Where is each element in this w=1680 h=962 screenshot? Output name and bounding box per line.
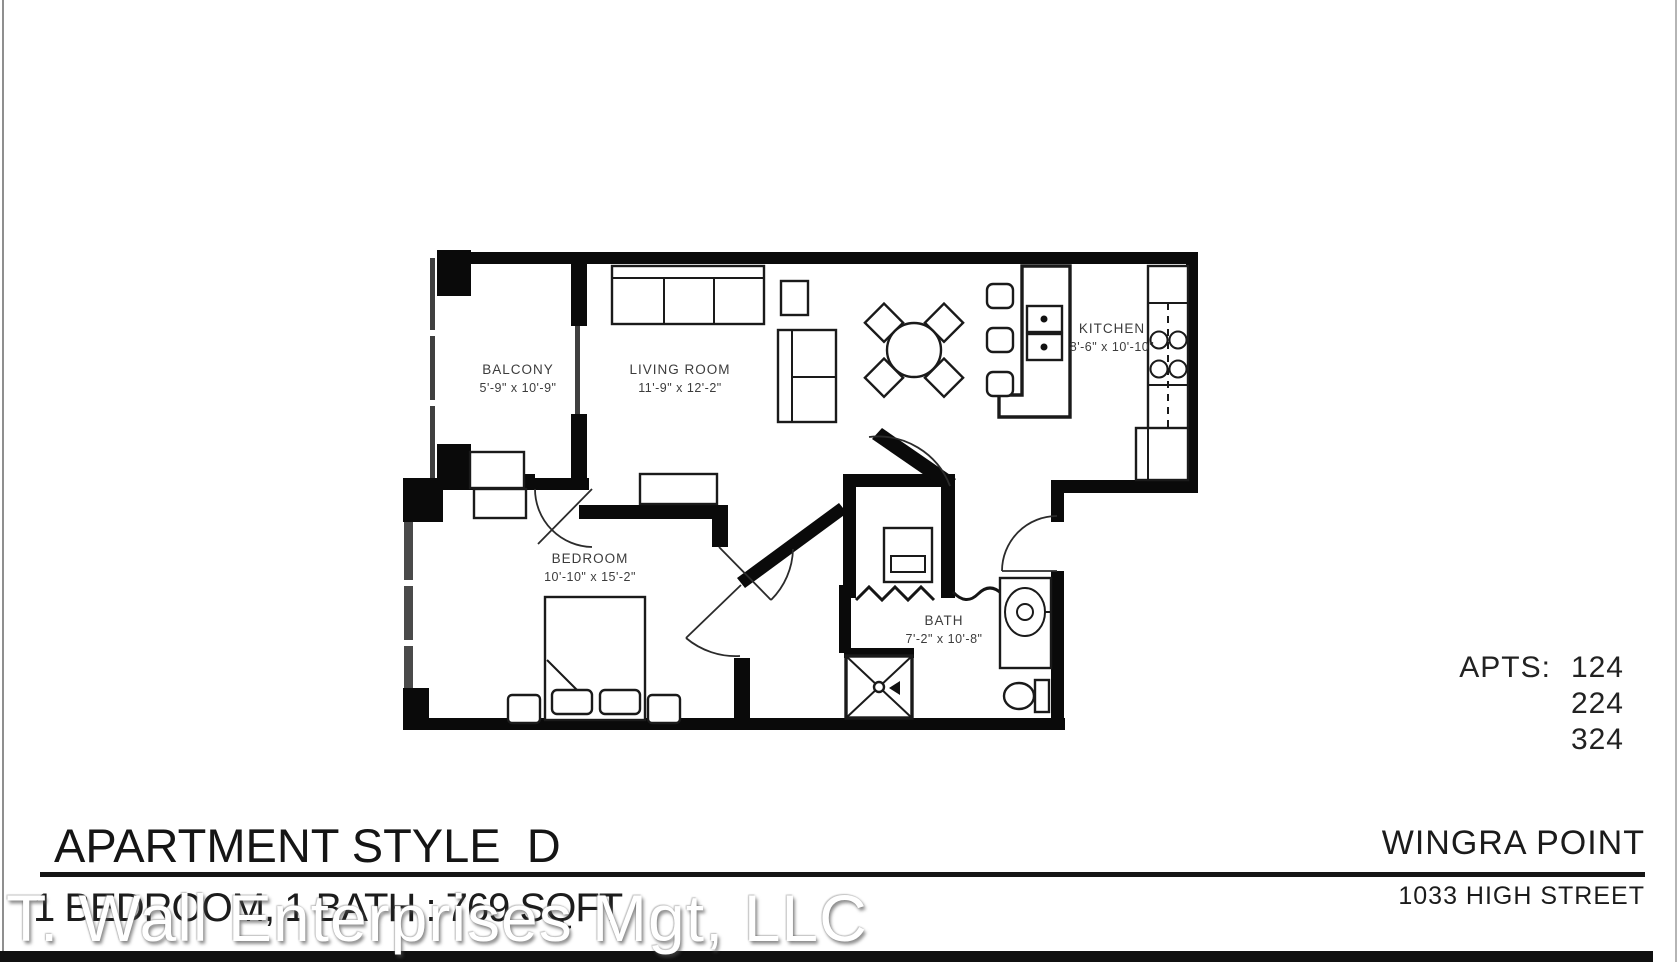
bath-vanity xyxy=(1000,578,1051,668)
bath-dims: 7'-2" x 10'-8" xyxy=(906,632,983,646)
bed xyxy=(545,597,645,720)
bedroom-dims: 10'-10" x 15'-2" xyxy=(544,570,636,584)
title-rule xyxy=(40,872,1645,877)
bedroom-label: BEDROOM xyxy=(552,551,629,566)
balcony-bench xyxy=(470,452,524,488)
nightstand-left xyxy=(508,695,540,723)
balcony-label: BALCONY xyxy=(482,362,554,377)
kitchen-dims: 8'-6" x 10'-10" xyxy=(1070,340,1154,354)
bath-label: BATH xyxy=(924,613,963,628)
apt-number: 124 xyxy=(1571,651,1624,684)
shower xyxy=(846,656,912,718)
dining-set xyxy=(865,304,963,397)
watermark: T. Wall Enterprises Mgt, LLC xyxy=(6,880,868,956)
kitchen-label: KITCHEN xyxy=(1079,321,1145,336)
apts-label: APTS: xyxy=(1459,651,1551,684)
apt-number: 324 xyxy=(1459,722,1624,758)
refrigerator xyxy=(1136,428,1188,480)
washer-dryer xyxy=(884,528,932,582)
apartment-list: APTS:124 224 324 xyxy=(1459,650,1624,758)
floorplan-sheet: BALCONY 5'-9" x 10'-9" LIVING ROOM 11'-9… xyxy=(0,0,1680,962)
media-console xyxy=(640,474,717,504)
armchair xyxy=(778,330,836,422)
dresser xyxy=(474,489,526,518)
apt-number: 224 xyxy=(1459,686,1624,722)
living-room-dims: 11'-9" x 12'-2" xyxy=(638,381,721,395)
toilet xyxy=(1004,680,1049,712)
bar-stools xyxy=(987,284,1013,396)
side-table xyxy=(781,281,808,315)
right-frame-line xyxy=(1675,0,1677,962)
balcony-dims: 5'-9" x 10'-9" xyxy=(480,381,557,395)
nightstand-right xyxy=(648,695,680,723)
property-address: 1033 HIGH STREET xyxy=(1398,882,1645,911)
page-title: APARTMENT STYLE D xyxy=(54,818,561,873)
apartment-list-row: APTS:124 xyxy=(1459,650,1624,686)
sofa xyxy=(612,266,764,324)
property-name: WINGRA POINT xyxy=(1382,824,1645,863)
living-room-label: LIVING ROOM xyxy=(629,362,730,377)
left-frame-line xyxy=(2,0,4,962)
